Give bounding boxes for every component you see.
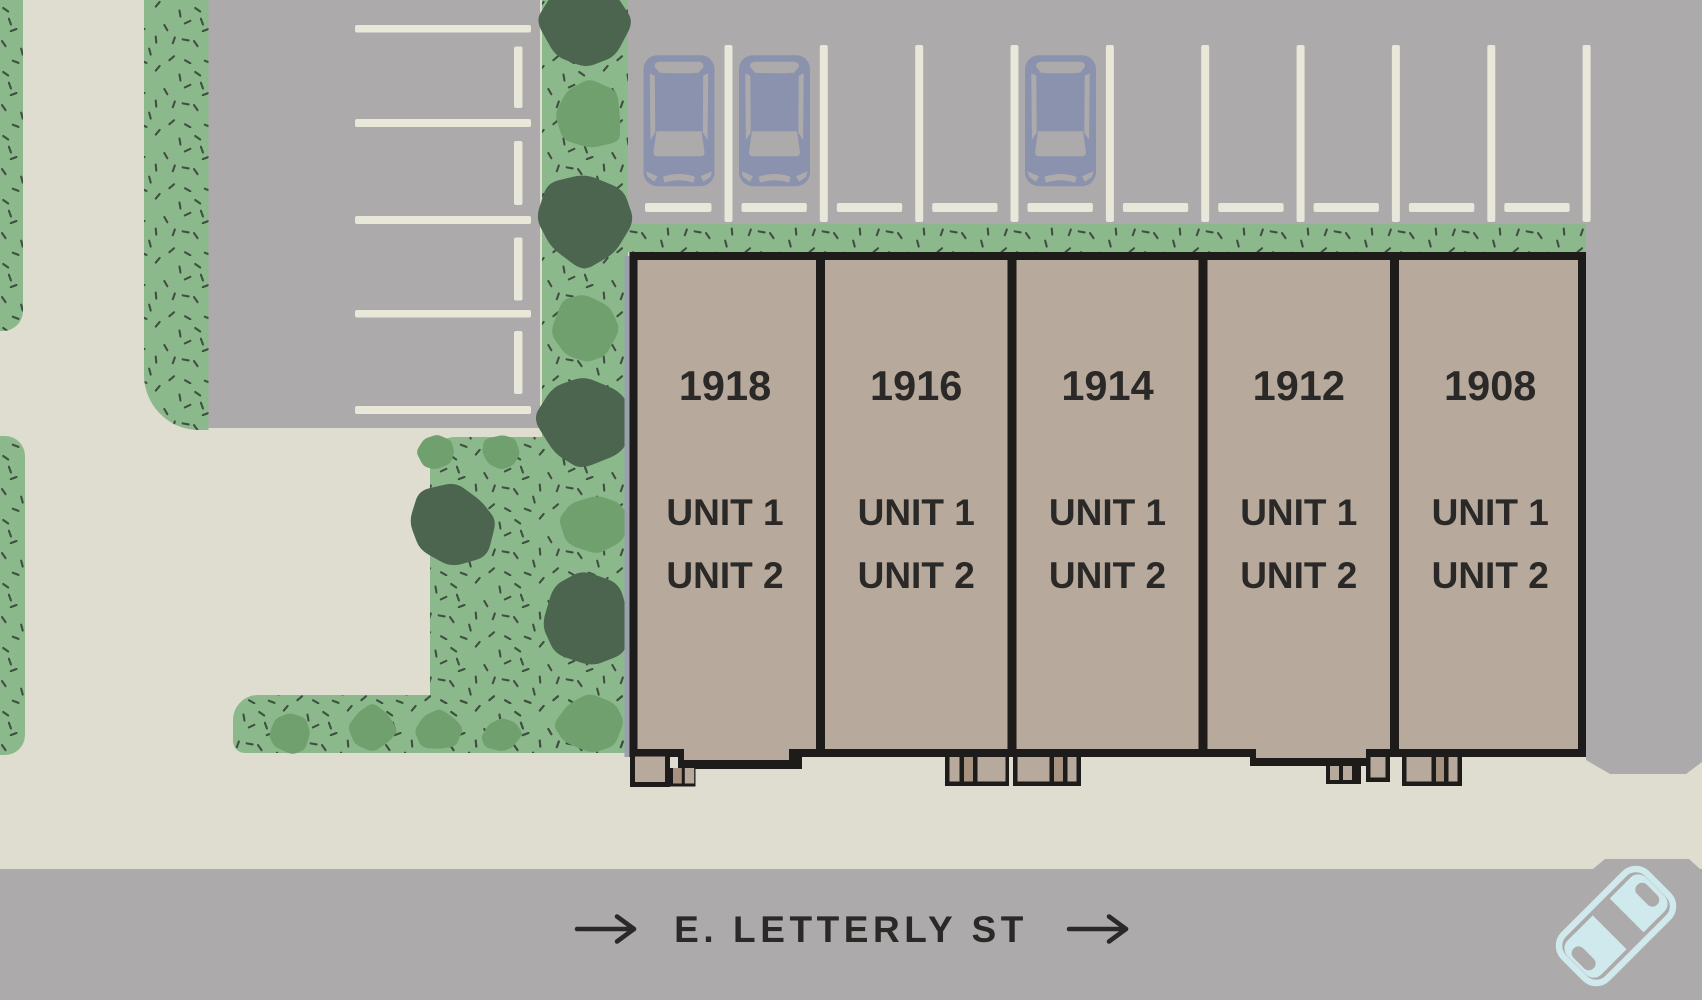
- svg-text:UNIT 1: UNIT 1: [666, 492, 783, 533]
- svg-text:1912: 1912: [1253, 362, 1345, 409]
- svg-text:UNIT 2: UNIT 2: [1432, 555, 1549, 596]
- svg-text:UNIT 1: UNIT 1: [858, 492, 975, 533]
- svg-text:1908: 1908: [1444, 362, 1536, 409]
- svg-text:UNIT 2: UNIT 2: [1240, 555, 1357, 596]
- svg-text:1916: 1916: [870, 362, 962, 409]
- svg-text:UNIT 1: UNIT 1: [1432, 492, 1549, 533]
- svg-text:UNIT 2: UNIT 2: [858, 555, 975, 596]
- svg-text:UNIT 2: UNIT 2: [666, 555, 783, 596]
- svg-text:UNIT 1: UNIT 1: [1240, 492, 1357, 533]
- svg-text:UNIT 2: UNIT 2: [1049, 555, 1166, 596]
- svg-text:E. LETTERLY ST: E. LETTERLY ST: [674, 909, 1028, 950]
- svg-text:1918: 1918: [679, 362, 771, 409]
- svg-text:UNIT 1: UNIT 1: [1049, 492, 1166, 533]
- svg-text:1914: 1914: [1061, 362, 1153, 409]
